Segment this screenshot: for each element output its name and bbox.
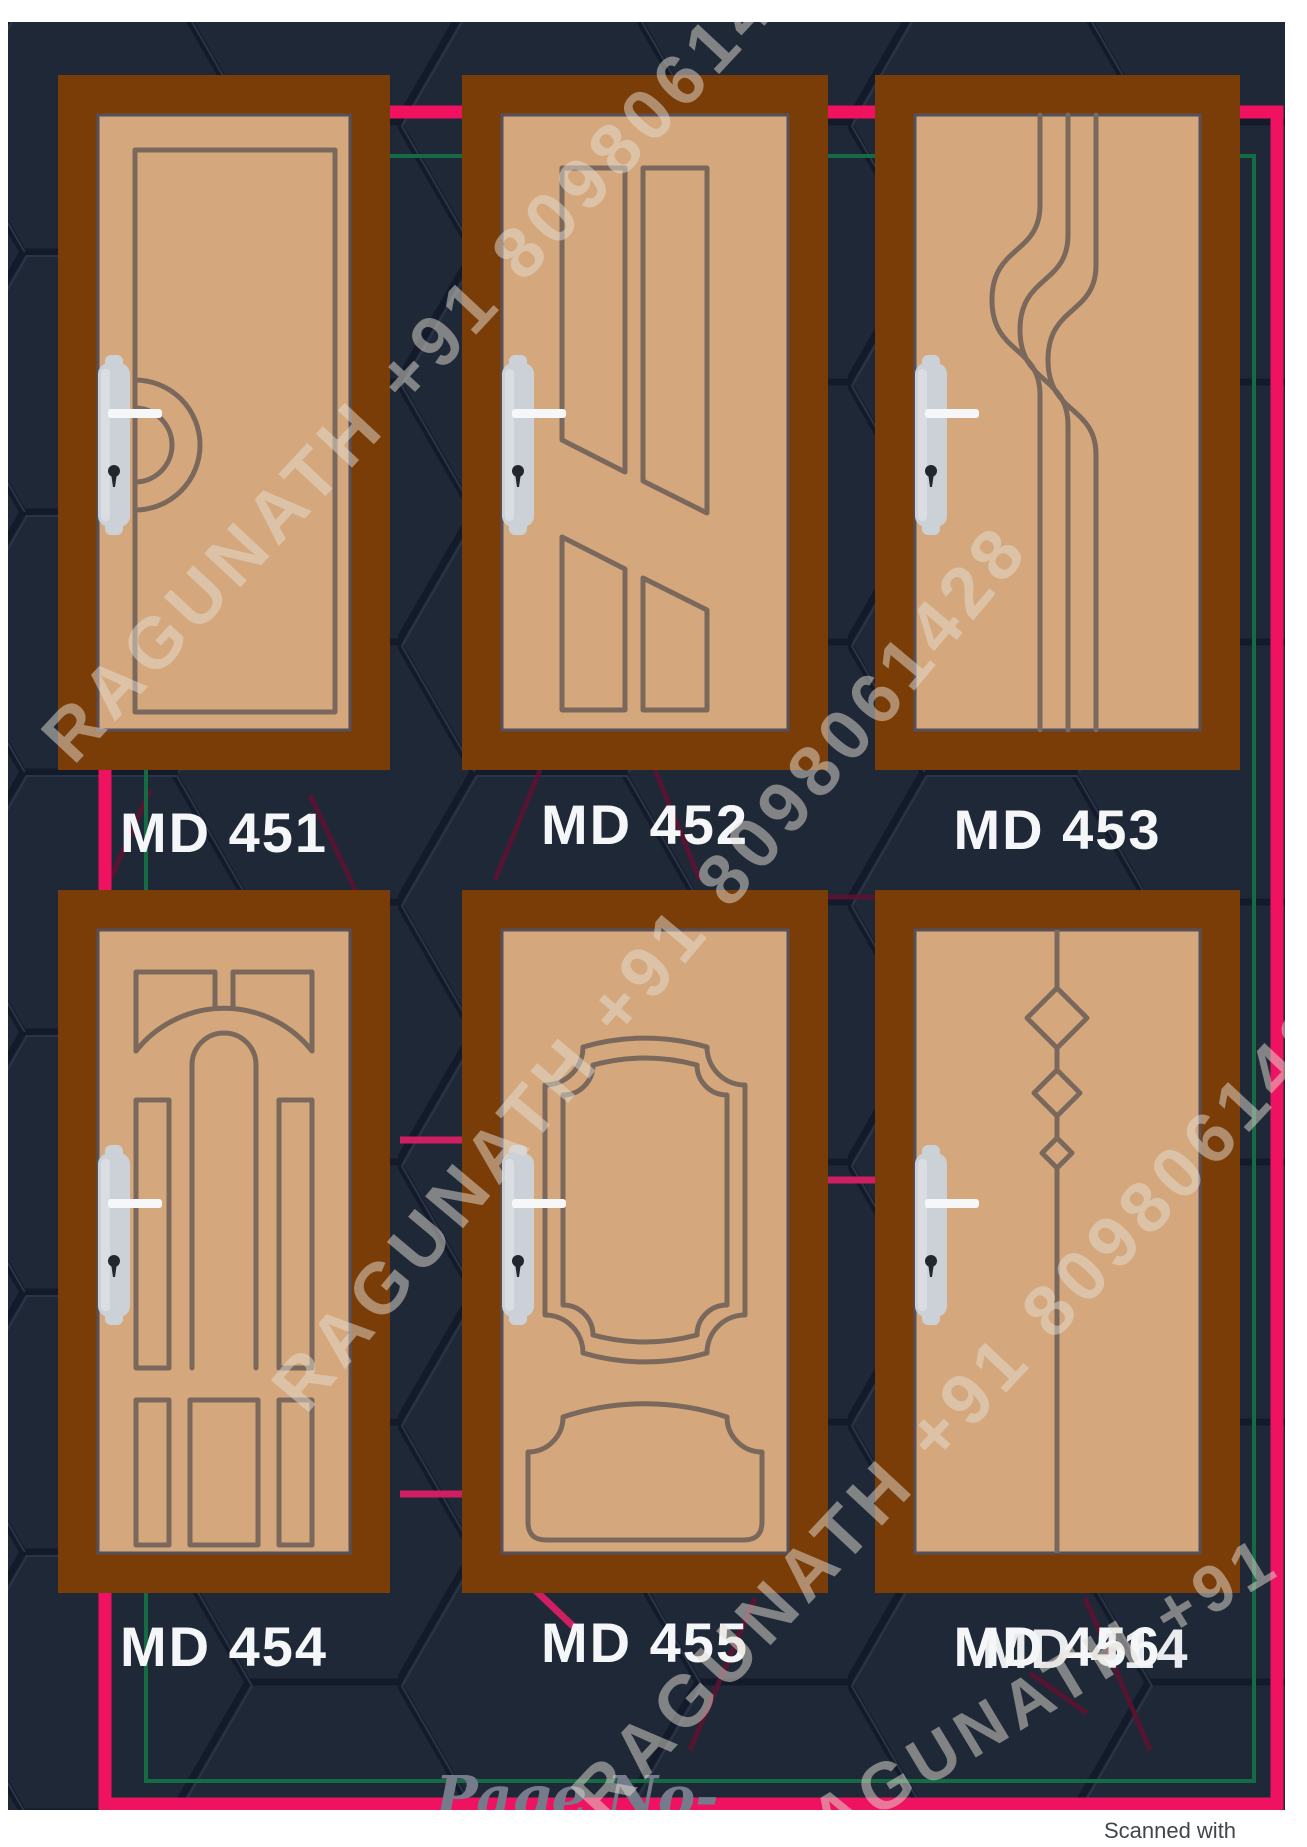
- door-code-ghost: MD 414: [981, 1616, 1189, 1681]
- door-design-md-452: [462, 75, 828, 770]
- door-design-md-456: [875, 890, 1240, 1593]
- door-design-md-454: [58, 890, 390, 1593]
- scanned-catalog-page: MD 451 MD 452 MD 453: [0, 0, 1307, 1847]
- door-code-label-overprinted: MD 456 MD 414: [875, 1614, 1240, 1679]
- door-code-label: MD 452: [462, 792, 828, 857]
- page-background: MD 451 MD 452 MD 453: [8, 22, 1285, 1810]
- door-code-label: MD 451: [58, 800, 390, 865]
- door-design-md-451: [58, 75, 390, 770]
- door-design-md-453: [875, 75, 1240, 770]
- camscanner-credit: Scanned with CamScanner: [1040, 1818, 1300, 1847]
- door-design-md-455: [462, 890, 828, 1593]
- door-code-label: MD 453: [875, 797, 1240, 862]
- door-code-label: MD 455: [462, 1610, 828, 1675]
- door-code-label: MD 454: [58, 1614, 390, 1679]
- page-number: Page No-77: [388, 1764, 758, 1810]
